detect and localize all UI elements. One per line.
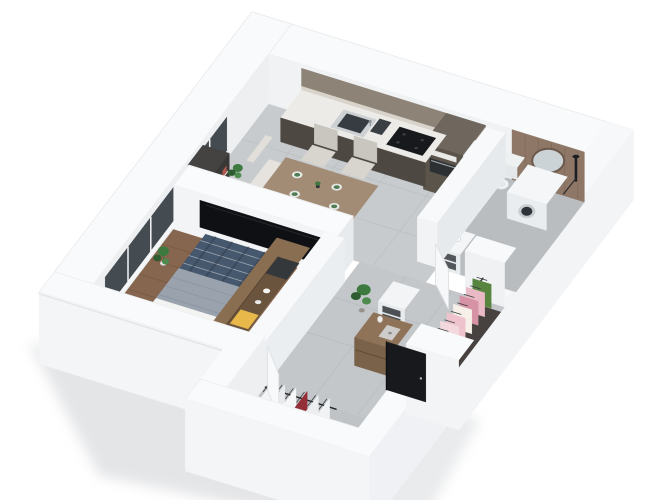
plant-leaves (162, 259, 169, 265)
wall-end-bath-west (417, 217, 437, 267)
floorplan-canvas: 3D isometric cutaway floor plan render o… (0, 0, 666, 500)
plant-leaves (153, 255, 161, 262)
folded-towels (263, 289, 270, 294)
plant-leaves (362, 297, 371, 304)
floorplan-figure: 3D isometric cutaway floor plan render o… (0, 0, 666, 500)
burner (414, 147, 417, 149)
faucet (369, 120, 372, 123)
burner (421, 139, 424, 141)
washer-door-glass (521, 207, 532, 216)
floorplan-svg: 3D isometric cutaway floor plan render o… (0, 0, 666, 500)
decor-stones (388, 332, 392, 334)
plate-green-center (292, 192, 298, 196)
entry-door-handle (420, 377, 422, 379)
plant-leaves (351, 292, 361, 300)
decor-vase (378, 316, 383, 322)
plate-green-center (294, 173, 300, 177)
burner (402, 133, 405, 135)
plant-leaves (158, 246, 169, 256)
table-plant (315, 182, 321, 186)
plant-leaves (234, 172, 241, 178)
plate-green-center (334, 185, 340, 189)
folded-towels (255, 300, 261, 304)
burner (396, 141, 399, 143)
shower-head (572, 155, 579, 159)
plant-pot (359, 308, 365, 312)
plate-green-center (331, 205, 337, 209)
